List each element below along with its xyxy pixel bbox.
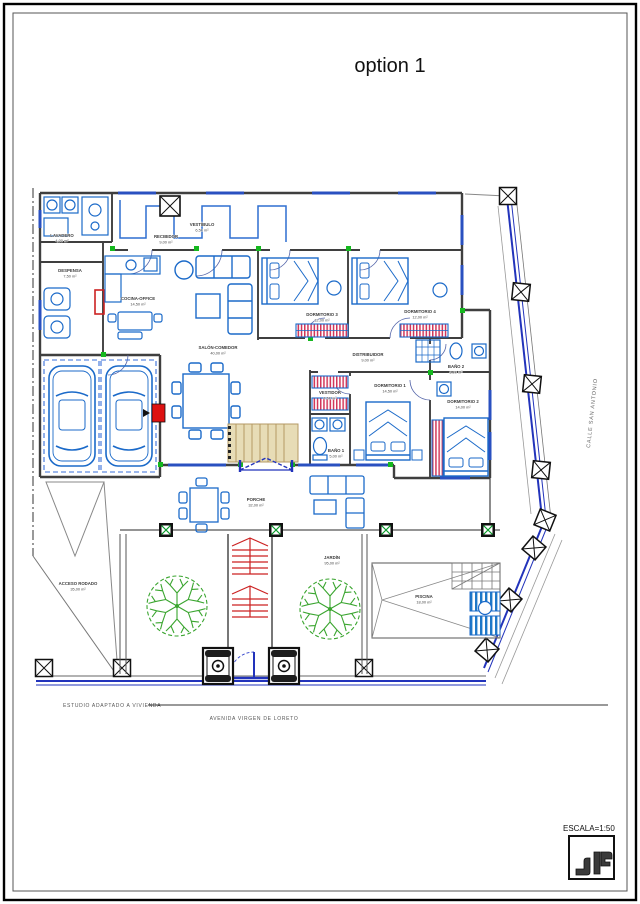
room-label: DORMITORIO 1 <box>374 383 406 388</box>
room-area: 5,00 m² <box>329 454 343 459</box>
room-area: 6,50 m² <box>195 228 209 233</box>
room-label: DISTRIBUIDOR <box>352 352 384 357</box>
room-area: 9,00 m² <box>361 358 375 363</box>
bedroom1-furniture <box>354 402 422 460</box>
room-label: SALÓN-COMEDOR <box>199 345 239 350</box>
room-label: ACCESO RODADO <box>59 581 98 586</box>
room-labels: LAVADERO 4,00 m² DESPENSA 7,50 m² RECIBI… <box>50 222 479 605</box>
room-label: PISCINA <box>415 594 432 599</box>
door-arcs <box>108 250 446 400</box>
bed-icon <box>352 258 408 304</box>
room-label: DORMITORIO 2 <box>447 399 479 404</box>
room-area: 14,50 m² <box>382 389 398 394</box>
exterior-stairs <box>232 538 268 617</box>
room-area: 32,00 m² <box>248 503 264 508</box>
room-area: 35,00 m² <box>70 587 86 592</box>
living-sofa-group <box>175 256 252 334</box>
scale-label: ESCALA=1:50 <box>563 824 615 833</box>
entrance-gate <box>203 648 299 684</box>
bed-icon <box>262 258 318 304</box>
car-icon <box>106 366 152 466</box>
room-label: VESTÍBULO <box>190 222 215 227</box>
floor-plan-svg: option 1 <box>0 0 640 904</box>
gate-column-icon <box>203 648 233 684</box>
footer-center-label: AVENIDA VIRGEN DE LORETO <box>210 716 299 722</box>
room-label: PORCHE <box>247 497 266 502</box>
gate-column-icon <box>269 648 299 684</box>
street-name-vertical: CALLE SAN ANTONIO <box>586 378 599 448</box>
room-label: JARDÍN <box>324 555 340 560</box>
interior-staircase <box>228 424 298 462</box>
tree-icon-right <box>300 579 360 639</box>
room-area: 7,50 m² <box>63 274 77 279</box>
room-area: 95,00 m² <box>324 561 340 566</box>
room-label: DORMITORIO 3 <box>306 312 338 317</box>
tree-icon-left <box>147 576 207 636</box>
closet-zigzag <box>120 200 286 242</box>
room-label: DESPENSA <box>58 268 82 273</box>
room-area: 40,00 m² <box>210 351 226 356</box>
shaft-icon <box>160 196 180 216</box>
room-area: 12,00 m² <box>412 315 428 320</box>
bedroom4-furniture <box>352 258 448 337</box>
page-title: option 1 <box>354 55 425 77</box>
room-label: DORMITORIO 4 <box>404 309 436 314</box>
bedroom2-furniture <box>432 382 488 476</box>
bed-icon <box>444 418 488 476</box>
room-label: BAÑO 1 <box>328 448 345 453</box>
room-label: COCINA-OFFICE <box>121 296 155 301</box>
room-label: VESTIDOR <box>319 390 342 395</box>
car-icon <box>49 366 95 466</box>
porch-sofa-group <box>310 476 364 528</box>
laundry-fixtures <box>44 197 108 236</box>
room-area: 9,00 m² <box>159 240 173 245</box>
room-area: 14,50 m² <box>130 302 146 307</box>
room-area: 18,00 m² <box>416 600 432 605</box>
room-label: RECIBIDOR <box>154 234 179 239</box>
utility-box <box>152 404 165 422</box>
arrow-icon <box>143 409 150 417</box>
room-area: 5,00 m² <box>449 370 463 375</box>
pool <box>372 563 500 638</box>
garage <box>44 360 165 472</box>
room-area: 14,00 m² <box>455 405 471 410</box>
bed-icon <box>366 402 410 460</box>
scale-block: ESCALA=1:50 <box>563 824 615 879</box>
bath2-fixtures <box>416 340 486 362</box>
drawing-sheet: option 1 <box>0 0 640 904</box>
porch-table-set <box>179 478 229 532</box>
footer-left-label: ESTUDIO ADAPTADO A VIVIENDA <box>63 703 161 709</box>
room-label: BAÑO 2 <box>448 364 465 369</box>
pantry-fixtures <box>44 288 70 338</box>
room-area: 12,00 m² <box>314 318 330 323</box>
bedroom3-furniture <box>262 258 348 337</box>
room-area: 4,00 m² <box>55 238 69 243</box>
room-area: 4,50 m² <box>323 396 337 401</box>
